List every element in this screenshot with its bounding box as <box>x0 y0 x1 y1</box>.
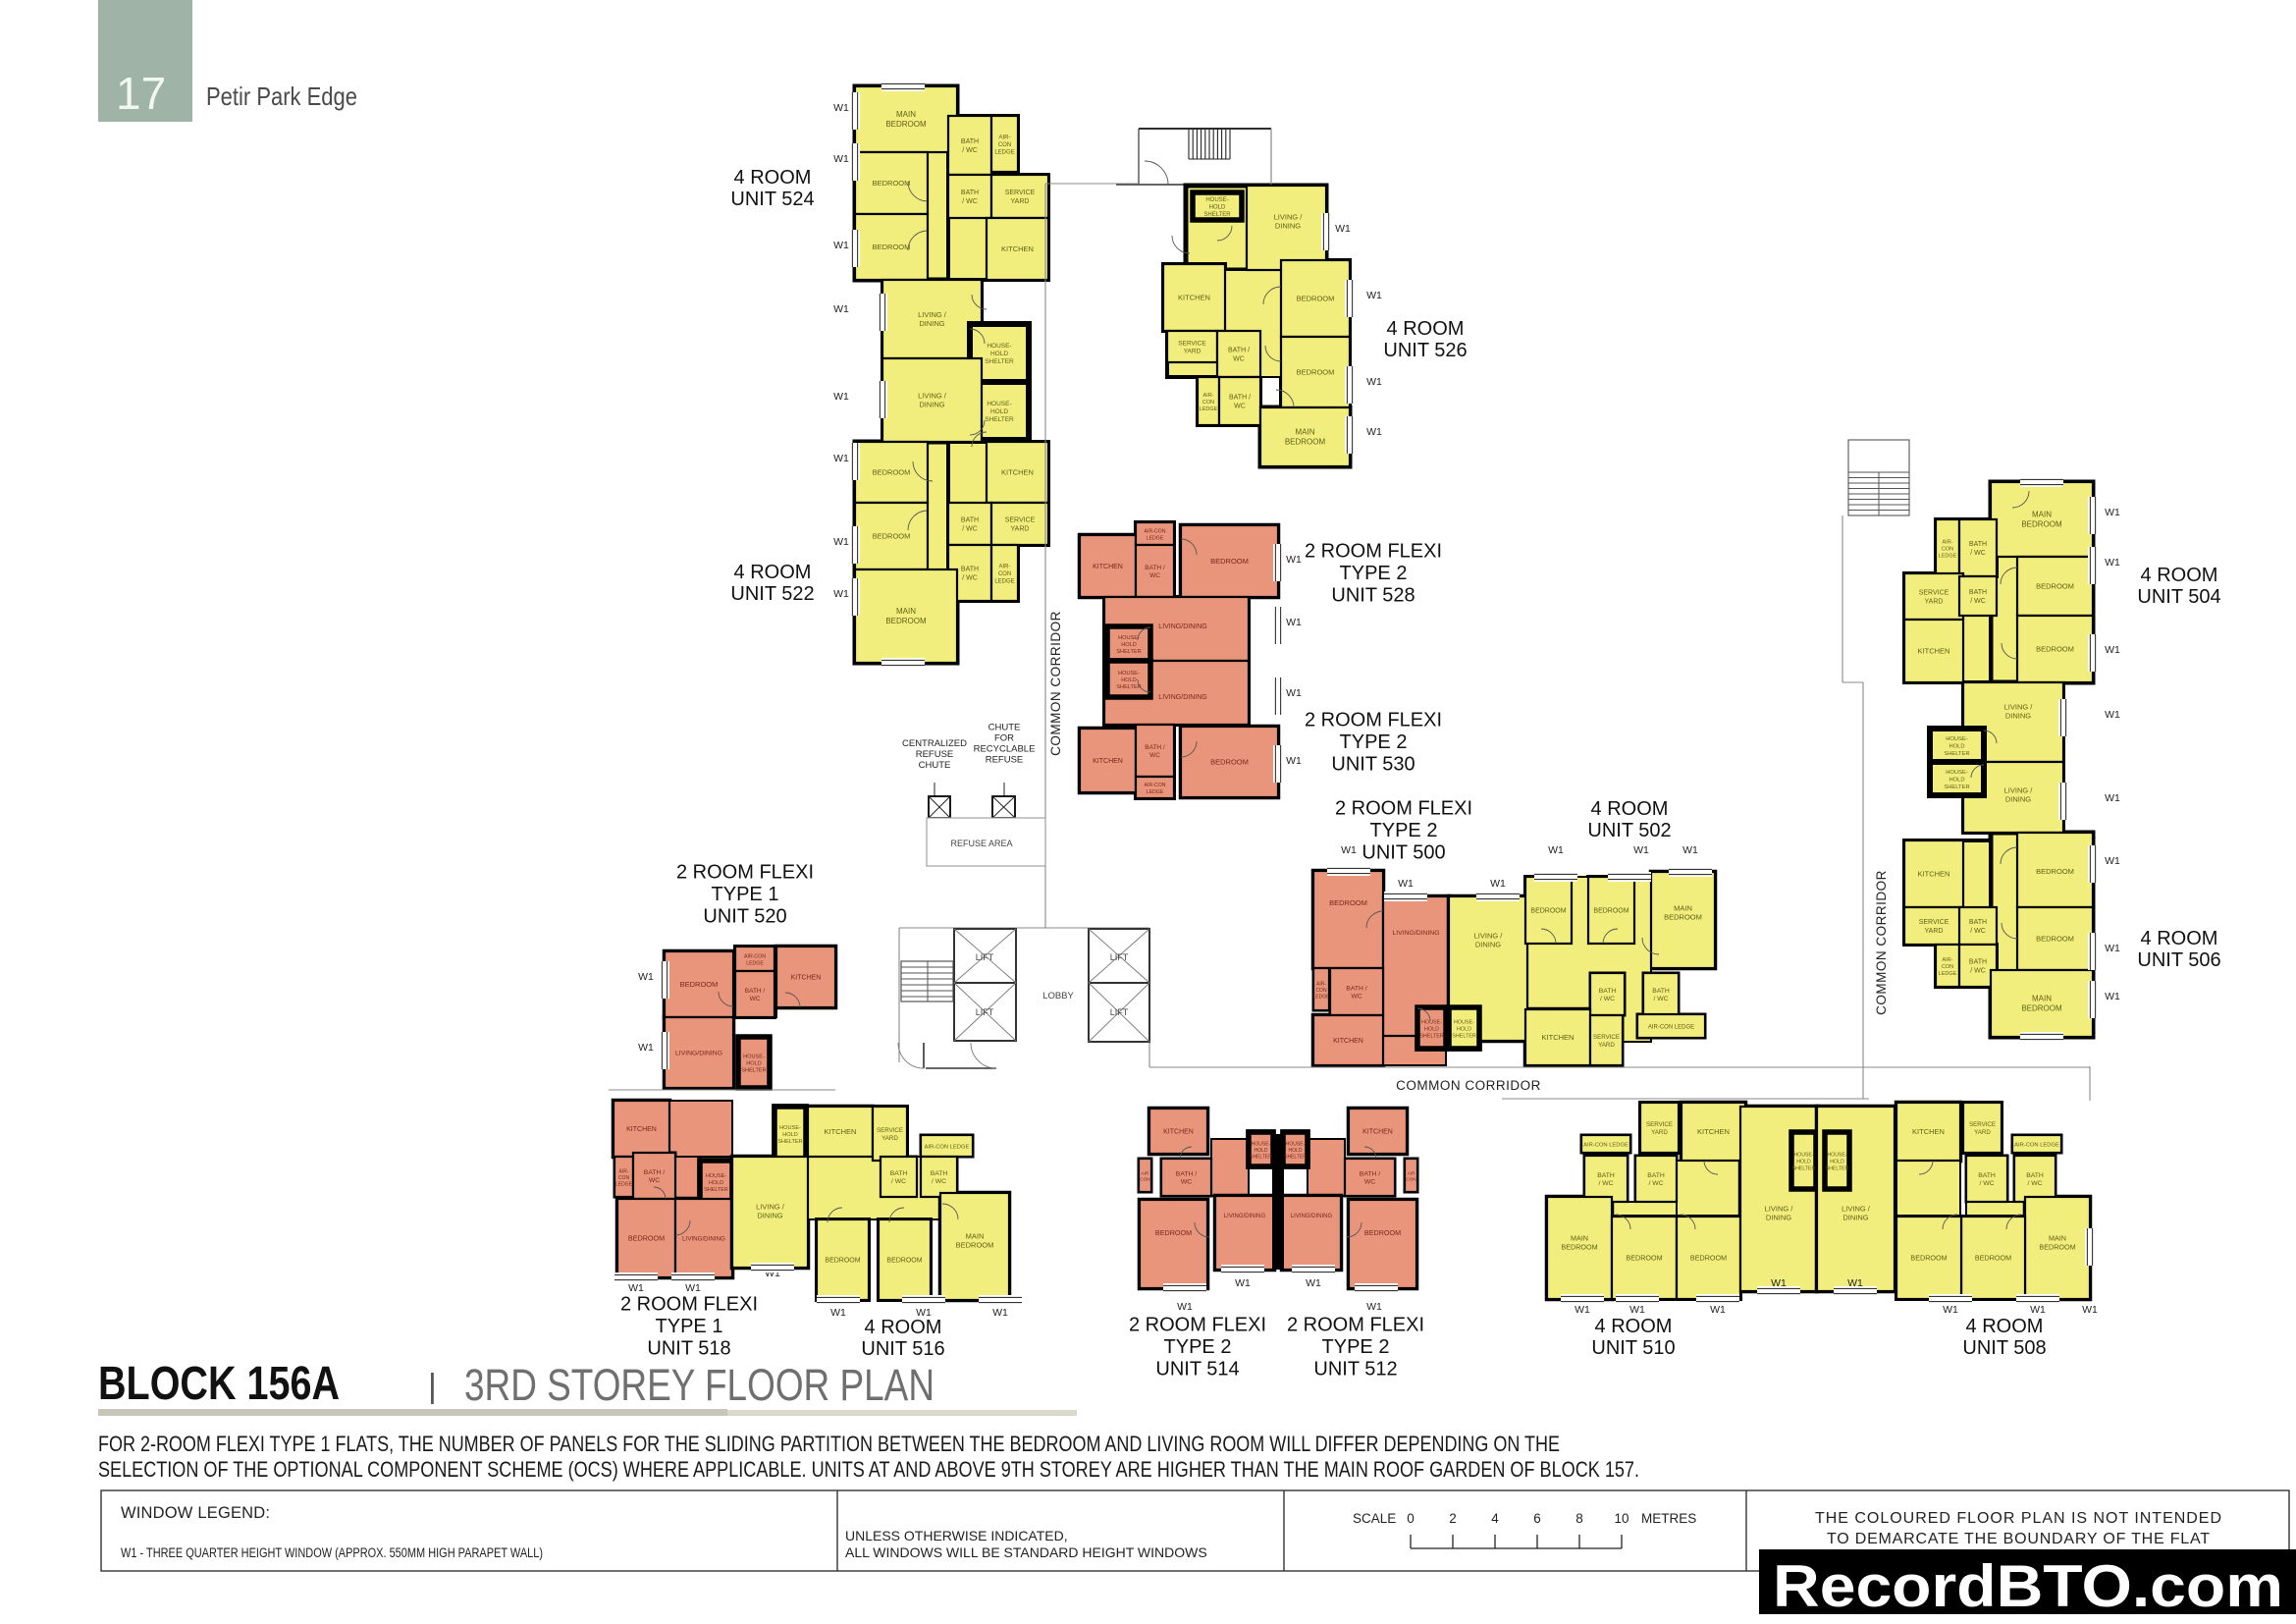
svg-text:KITCHEN: KITCHEN <box>1918 647 1950 656</box>
svg-text:BEDROOM: BEDROOM <box>1210 758 1249 767</box>
svg-text:KITCHEN: KITCHEN <box>1001 244 1034 253</box>
svg-text:W1: W1 <box>833 453 849 464</box>
svg-text:UNLESS OTHERWISE INDICATED,: UNLESS OTHERWISE INDICATED, <box>845 1528 1068 1543</box>
svg-text:W1: W1 <box>992 1307 1008 1319</box>
svg-text:BEDROOM: BEDROOM <box>873 468 911 477</box>
svg-text:LIVING/DINING: LIVING/DINING <box>1291 1214 1333 1219</box>
svg-text:BEDROOM: BEDROOM <box>873 243 911 251</box>
svg-text:AIR-CON LEDGE: AIR-CON LEDGE <box>2014 1143 2059 1149</box>
svg-text:4 ROOMUNIT 504: 4 ROOMUNIT 504 <box>2137 565 2220 608</box>
svg-text:LIVING /DINING: LIVING /DINING <box>1474 932 1504 949</box>
svg-text:W1: W1 <box>1490 878 1506 890</box>
svg-text:KITCHEN: KITCHEN <box>626 1126 657 1133</box>
svg-text:4 ROOMUNIT 508: 4 ROOMUNIT 508 <box>1962 1316 2046 1359</box>
svg-text:W1: W1 <box>1398 878 1414 890</box>
svg-text:W1: W1 <box>1235 1277 1251 1289</box>
svg-text:BATH/ WC: BATH/ WC <box>961 517 979 533</box>
svg-text:LIVING /DINING: LIVING /DINING <box>918 391 947 408</box>
svg-text:AIR-CON LEDGE: AIR-CON LEDGE <box>1648 1025 1694 1031</box>
svg-text:RecordBTO.com: RecordBTO.com <box>1773 1553 2283 1619</box>
svg-text:KITCHEN: KITCHEN <box>825 1127 857 1136</box>
svg-text:KITCHEN: KITCHEN <box>1362 1129 1393 1136</box>
svg-text:KITCHEN: KITCHEN <box>1093 758 1123 765</box>
svg-text:W1: W1 <box>1633 844 1649 856</box>
svg-text:BATH/ WC: BATH/ WC <box>961 189 979 205</box>
svg-text:W1: W1 <box>833 153 849 165</box>
svg-text:THE COLOURED FLOOR PLAN IS NOT: THE COLOURED FLOOR PLAN IS NOT INTENDED <box>1815 1510 2221 1527</box>
svg-text:LIVING /DINING: LIVING /DINING <box>1765 1205 1794 1222</box>
svg-text:W1: W1 <box>1682 844 1698 856</box>
svg-text:BEDROOM: BEDROOM <box>628 1234 665 1243</box>
svg-text:AIR-CONLEDGE: AIR-CONLEDGE <box>744 954 766 967</box>
svg-text:KITCHEN: KITCHEN <box>1178 294 1210 302</box>
svg-text:4 ROOMUNIT 516: 4 ROOMUNIT 516 <box>861 1317 944 1360</box>
svg-text:BATH/ WC: BATH/ WC <box>1978 1172 1996 1187</box>
svg-text:BEDROOM: BEDROOM <box>2036 582 2074 591</box>
svg-text:LIVING/DINING: LIVING/DINING <box>1224 1214 1266 1219</box>
svg-text:LIFT: LIFT <box>976 1007 994 1017</box>
svg-text:KITCHEN: KITCHEN <box>1163 1129 1194 1136</box>
svg-text:BATH/ WC: BATH/ WC <box>1969 919 1987 935</box>
svg-text:W1: W1 <box>1286 554 1302 566</box>
svg-text:W1: W1 <box>1629 1304 1645 1316</box>
svg-text:LOBBY: LOBBY <box>1042 991 1074 1001</box>
svg-text:6: 6 <box>1533 1511 1541 1526</box>
svg-text:METRES: METRES <box>1641 1511 1696 1526</box>
svg-text:W1: W1 <box>1286 617 1302 628</box>
svg-text:W1: W1 <box>2105 792 2120 804</box>
svg-text:4 ROOMUNIT 524: 4 ROOMUNIT 524 <box>730 167 814 210</box>
svg-text:KITCHEN: KITCHEN <box>1697 1127 1730 1136</box>
svg-text:W1: W1 <box>2105 943 2120 954</box>
svg-text:4 ROOMUNIT 506: 4 ROOMUNIT 506 <box>2137 928 2220 971</box>
svg-text:W1: W1 <box>833 102 849 114</box>
svg-text:2: 2 <box>1449 1511 1457 1526</box>
svg-text:COMMON CORRIDOR: COMMON CORRIDOR <box>1874 870 1889 1015</box>
svg-text:KITCHEN: KITCHEN <box>791 975 822 982</box>
svg-text:W1: W1 <box>638 1042 654 1054</box>
svg-text:W1: W1 <box>1306 1277 1321 1289</box>
svg-text:BEDROOM: BEDROOM <box>2036 867 2074 876</box>
svg-text:BATH/ WC: BATH/ WC <box>961 138 979 154</box>
svg-text:BATH/ WC: BATH/ WC <box>1969 589 1987 605</box>
svg-text:W1: W1 <box>833 588 849 600</box>
svg-text:LIVING /DINING: LIVING /DINING <box>918 310 947 328</box>
svg-text:LIVING /DINING: LIVING /DINING <box>2004 786 2034 804</box>
svg-text:W1: W1 <box>638 971 654 983</box>
svg-text:4 ROOMUNIT 510: 4 ROOMUNIT 510 <box>1591 1316 1675 1359</box>
svg-text:3RD STOREY FLOOR PLAN: 3RD STOREY FLOOR PLAN <box>464 1360 934 1410</box>
svg-text:SELECTION OF THE OPTIONAL COMP: SELECTION OF THE OPTIONAL COMPONENT SCHE… <box>98 1457 1639 1482</box>
svg-text:BEDROOM: BEDROOM <box>886 1258 922 1265</box>
svg-text:W1: W1 <box>833 391 849 403</box>
svg-text:ALL WINDOWS WILL BE STANDARD H: ALL WINDOWS WILL BE STANDARD HEIGHT WIND… <box>845 1544 1207 1560</box>
svg-text:KITCHEN: KITCHEN <box>1333 1038 1363 1045</box>
svg-text:W1: W1 <box>2105 855 2120 867</box>
svg-text:LIVING /DINING: LIVING /DINING <box>756 1203 785 1220</box>
svg-text:W1: W1 <box>1366 1301 1382 1313</box>
svg-text:4 ROOMUNIT 522: 4 ROOMUNIT 522 <box>730 562 814 605</box>
svg-text:AIR-CON LEDGE: AIR-CON LEDGE <box>1583 1143 1629 1149</box>
svg-text:W1: W1 <box>1286 687 1302 699</box>
svg-text:4: 4 <box>1491 1511 1499 1526</box>
svg-text:BEDROOM: BEDROOM <box>1910 1254 1947 1263</box>
svg-text:SCALE: SCALE <box>1353 1511 1396 1526</box>
svg-text:W1: W1 <box>2105 991 2120 1002</box>
svg-text:10: 10 <box>1614 1511 1629 1526</box>
svg-text:LIVING/DINING: LIVING/DINING <box>682 1236 725 1243</box>
svg-text:W1: W1 <box>833 303 849 315</box>
svg-text:W1: W1 <box>1366 290 1382 301</box>
svg-text:W1: W1 <box>2105 644 2120 656</box>
svg-text:LIFT: LIFT <box>1110 1007 1129 1017</box>
svg-text:LIVING /DINING: LIVING /DINING <box>1842 1205 1871 1222</box>
svg-text:BATH/ WC: BATH/ WC <box>890 1170 908 1185</box>
svg-text:W1: W1 <box>1366 426 1382 438</box>
svg-text:4 ROOMUNIT 526: 4 ROOMUNIT 526 <box>1383 318 1467 361</box>
svg-text:BEDROOM: BEDROOM <box>2036 645 2074 654</box>
svg-text:FOR 2-ROOM FLEXI TYPE 1 FLATS,: FOR 2-ROOM FLEXI TYPE 1 FLATS, THE NUMBE… <box>98 1432 1560 1456</box>
svg-text:W1: W1 <box>2105 557 2120 568</box>
svg-text:BEDROOM: BEDROOM <box>1155 1228 1192 1237</box>
svg-text:AIR-CONLEDGE: AIR-CONLEDGE <box>1145 783 1166 795</box>
svg-text:BEDROOM: BEDROOM <box>1297 295 1335 303</box>
svg-text:KITCHEN: KITCHEN <box>1912 1127 1945 1136</box>
svg-text:W1: W1 <box>1943 1304 1958 1316</box>
svg-text:Petir Park Edge: Petir Park Edge <box>206 81 357 111</box>
svg-text:BATH/ WC: BATH/ WC <box>2026 1172 2044 1187</box>
svg-text:WINDOW LEGEND:: WINDOW LEGEND: <box>121 1504 270 1522</box>
svg-text:W1: W1 <box>1575 1304 1590 1316</box>
svg-text:8: 8 <box>1575 1511 1583 1526</box>
svg-text:AIRCON: AIRCON <box>1140 1170 1149 1181</box>
svg-text:W1: W1 <box>1286 755 1302 767</box>
svg-text:BEDROOM: BEDROOM <box>1975 1254 2011 1263</box>
svg-text:LIVING/DINING: LIVING/DINING <box>1158 694 1206 701</box>
svg-text:BATH/ WC: BATH/ WC <box>1652 988 1670 1002</box>
svg-text:AIR-CON LEDGE: AIR-CON LEDGE <box>925 1145 970 1151</box>
svg-text:LIVING /DINING: LIVING /DINING <box>2004 703 2034 721</box>
svg-text:W1 - THREE QUARTER HEIGHT WIND: W1 - THREE QUARTER HEIGHT WINDOW (APPROX… <box>121 1545 543 1560</box>
svg-text:W1: W1 <box>830 1307 846 1319</box>
svg-text:LIVING/DINING: LIVING/DINING <box>1158 623 1206 630</box>
svg-text:AIR-CONLEDGE: AIR-CONLEDGE <box>1145 529 1166 542</box>
svg-text:4 ROOMUNIT 502: 4 ROOMUNIT 502 <box>1587 798 1671 841</box>
svg-text:W1: W1 <box>2105 709 2120 721</box>
svg-text:BEDROOM: BEDROOM <box>873 179 911 188</box>
svg-text:KITCHEN: KITCHEN <box>1542 1033 1575 1042</box>
svg-text:BEDROOM: BEDROOM <box>1210 557 1249 566</box>
svg-text:REFUSE AREA: REFUSE AREA <box>950 839 1012 848</box>
svg-text:W1: W1 <box>833 536 849 548</box>
svg-text:|: | <box>428 1368 437 1405</box>
svg-text:LIVING /DINING: LIVING /DINING <box>1274 212 1304 230</box>
svg-text:W1: W1 <box>833 240 849 251</box>
svg-text:W1: W1 <box>1548 844 1564 856</box>
svg-text:W1: W1 <box>2082 1304 2098 1316</box>
svg-text:BEDROOM: BEDROOM <box>2036 935 2074 944</box>
svg-text:KITCHEN: KITCHEN <box>1918 870 1950 879</box>
svg-text:COMMON CORRIDOR: COMMON CORRIDOR <box>1048 611 1063 756</box>
svg-text:LIVING/DINING: LIVING/DINING <box>1393 930 1440 937</box>
svg-text:BEDROOM: BEDROOM <box>873 532 911 541</box>
svg-text:TO DEMARCATE THE BOUNDARY OF T: TO DEMARCATE THE BOUNDARY OF THE FLAT <box>1827 1531 2210 1547</box>
svg-text:AIRCON: AIRCON <box>1406 1170 1415 1181</box>
svg-text:LIFT: LIFT <box>976 952 994 962</box>
svg-text:LIVING/DINING: LIVING/DINING <box>675 1051 722 1057</box>
svg-text:17: 17 <box>116 68 166 119</box>
svg-text:W1: W1 <box>685 1282 701 1294</box>
svg-text:BEDROOM: BEDROOM <box>1364 1228 1401 1237</box>
svg-text:KITCHEN: KITCHEN <box>1001 468 1034 477</box>
svg-text:COMMON CORRIDOR: COMMON CORRIDOR <box>1396 1078 1541 1093</box>
svg-text:BEDROOM: BEDROOM <box>680 980 719 989</box>
svg-text:BEDROOM: BEDROOM <box>1690 1254 1727 1263</box>
svg-text:BATH/ WC: BATH/ WC <box>931 1170 948 1185</box>
svg-text:BEDROOM: BEDROOM <box>1530 908 1566 915</box>
svg-text:W1: W1 <box>1335 223 1351 235</box>
svg-text:W1: W1 <box>2030 1304 2046 1316</box>
svg-text:BATH/ WC: BATH/ WC <box>1969 541 1987 557</box>
svg-text:W1: W1 <box>1177 1301 1193 1313</box>
svg-text:BATH/ WC: BATH/ WC <box>961 567 979 582</box>
svg-text:BEDROOM: BEDROOM <box>825 1258 860 1265</box>
svg-text:W1: W1 <box>1366 376 1382 388</box>
svg-text:BATH/ WC: BATH/ WC <box>1647 1172 1665 1187</box>
svg-text:BEDROOM: BEDROOM <box>1593 908 1629 915</box>
svg-text:BEDROOM: BEDROOM <box>1329 898 1367 907</box>
svg-text:BLOCK 156A: BLOCK 156A <box>98 1358 340 1410</box>
svg-text:W1: W1 <box>1341 844 1357 856</box>
svg-text:BATH/ WC: BATH/ WC <box>1597 1172 1615 1187</box>
svg-text:BEDROOM: BEDROOM <box>1626 1254 1662 1263</box>
svg-text:W1: W1 <box>628 1282 644 1294</box>
svg-text:KITCHEN: KITCHEN <box>1093 564 1123 570</box>
svg-text:W1: W1 <box>2105 507 2120 518</box>
svg-text:BATH/ WC: BATH/ WC <box>1969 959 1987 975</box>
svg-text:W1: W1 <box>1710 1304 1726 1316</box>
svg-text:BEDROOM: BEDROOM <box>1297 368 1335 377</box>
svg-text:0: 0 <box>1407 1511 1415 1526</box>
svg-text:LIFT: LIFT <box>1110 952 1129 962</box>
svg-text:BATH/ WC: BATH/ WC <box>1599 988 1617 1002</box>
